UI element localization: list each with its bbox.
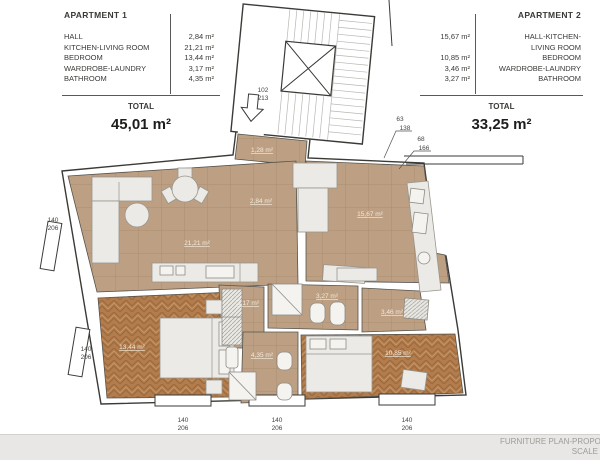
legend1-total-value: 45,01 m² bbox=[62, 116, 220, 133]
apt1-kitchen-counter bbox=[152, 263, 258, 282]
apt1-washer-column bbox=[222, 289, 242, 345]
svg-text:140: 140 bbox=[178, 417, 189, 424]
staircase bbox=[231, 4, 375, 146]
label-apt2-bedroom: 10,85 m² bbox=[385, 350, 411, 357]
label-apt1-bedroom: 13,44 m² bbox=[119, 344, 145, 351]
apt2-bed bbox=[306, 336, 372, 392]
legend2-row: 3,27 m² BATHROOM bbox=[420, 74, 583, 85]
room-area: 10,85 m² bbox=[420, 53, 470, 64]
room-area: 15,67 m² bbox=[420, 32, 470, 53]
svg-text:140: 140 bbox=[402, 417, 413, 424]
room-area: 4,35 m² bbox=[189, 74, 220, 85]
apt1-nightstand bbox=[206, 300, 222, 314]
sheet-scale-label: SCALE bbox=[540, 447, 598, 456]
svg-text:102: 102 bbox=[258, 87, 269, 94]
apt2-tv-bench bbox=[337, 268, 377, 281]
svg-text:206: 206 bbox=[81, 354, 92, 361]
label-apt2-living: 15,67 m² bbox=[357, 211, 383, 218]
room-area: 3,27 m² bbox=[420, 74, 470, 85]
svg-text:206: 206 bbox=[48, 225, 59, 232]
apt1-nightstand bbox=[206, 380, 222, 394]
legend1-row: BATHROOM 4,35 m² bbox=[62, 74, 220, 85]
svg-text:206: 206 bbox=[272, 425, 283, 432]
svg-text:206: 206 bbox=[178, 425, 189, 432]
label-apt1-hall: 2,84 m² bbox=[250, 198, 273, 205]
room-area: 3,46 m² bbox=[420, 64, 470, 75]
svg-text:140: 140 bbox=[81, 346, 92, 353]
room-name: BEDROOM bbox=[62, 53, 103, 64]
room-area: 2,84 m² bbox=[189, 32, 220, 43]
legend1-rule bbox=[62, 95, 220, 96]
legend1-row: KITCHEN-LIVING ROOM 21,21 m² bbox=[62, 43, 220, 54]
legend2-total-label: TOTAL bbox=[420, 102, 583, 111]
apt2-toilet bbox=[330, 302, 345, 325]
svg-text:213: 213 bbox=[258, 95, 269, 102]
sheet-title: FURNITURE PLAN-PROPO bbox=[500, 437, 600, 446]
apartment2-title: APARTMENT 2 bbox=[420, 10, 583, 20]
svg-text:206: 206 bbox=[402, 425, 413, 432]
legend1-row: HALL 2,84 m² bbox=[62, 32, 220, 43]
apt2-washer bbox=[403, 298, 429, 320]
room-name: BEDROOM bbox=[470, 53, 583, 64]
legend1-row: WARDROBE-LAUNDRY 3,17 m² bbox=[62, 64, 220, 75]
legend2-divider bbox=[475, 14, 476, 94]
label-apt1-kitchen-living: 21,21 m² bbox=[184, 240, 210, 247]
room-name: BATHROOM bbox=[62, 74, 107, 85]
legend1-divider bbox=[170, 14, 171, 94]
svg-text:63: 63 bbox=[396, 116, 404, 123]
floor-plan-sheet: 1,28 m² 2,84 m² 21,21 m² 13,44 m² 3,17 m… bbox=[0, 0, 600, 460]
svg-text:140: 140 bbox=[272, 417, 283, 424]
apartment2-legend: APARTMENT 2 15,67 m² HALL-KITCHEN- LIVIN… bbox=[420, 10, 583, 85]
svg-text:68: 68 bbox=[417, 136, 425, 143]
legend2-row: 10,85 m² BEDROOM bbox=[420, 53, 583, 64]
label-apt2-bathroom: 3,27 m² bbox=[316, 293, 339, 300]
room-name: WARDROBE-LAUNDRY bbox=[62, 64, 146, 75]
label-apt2-wardrobe: 3,46 m² bbox=[381, 309, 404, 316]
legend2-rule bbox=[420, 95, 583, 96]
room-area: 13,44 m² bbox=[184, 53, 220, 64]
label-apt1-bathroom: 4,35 m² bbox=[251, 352, 274, 359]
legend1-total-label: TOTAL bbox=[62, 102, 220, 111]
apt2-washbasin bbox=[310, 303, 325, 323]
room-name: BATHROOM bbox=[470, 74, 583, 85]
apt2-desk bbox=[401, 369, 427, 390]
legend1-row: BEDROOM 13,44 m² bbox=[62, 53, 220, 64]
elevator-shaft bbox=[281, 41, 336, 96]
room-name: WARDROBE-LAUNDRY bbox=[470, 64, 583, 75]
svg-text:140: 140 bbox=[48, 217, 59, 224]
legend2-total-value: 33,25 m² bbox=[420, 116, 583, 133]
room-name: KITCHEN-LIVING ROOM bbox=[62, 43, 149, 54]
room-name: HALL-KITCHEN- LIVING ROOM bbox=[470, 32, 583, 53]
apt2-shower bbox=[272, 284, 302, 315]
apartment1-title: APARTMENT 1 bbox=[62, 10, 220, 20]
apt1-coffee-table bbox=[125, 203, 149, 227]
room-area: 21,21 m² bbox=[184, 43, 220, 54]
legend2-row: 3,46 m² WARDROBE-LAUNDRY bbox=[420, 64, 583, 75]
label-entry: 1,28 m² bbox=[251, 147, 274, 154]
label-apt1-wardrobe: 3,17 m² bbox=[237, 300, 260, 307]
apartment1-legend: APARTMENT 1 HALL 2,84 m² KITCHEN-LIVING … bbox=[62, 10, 220, 85]
room-area: 3,17 m² bbox=[189, 64, 220, 75]
legend2-row: 15,67 m² HALL-KITCHEN- LIVING ROOM bbox=[420, 32, 583, 53]
building-edge bbox=[389, 0, 392, 46]
room-name: HALL bbox=[62, 32, 83, 43]
